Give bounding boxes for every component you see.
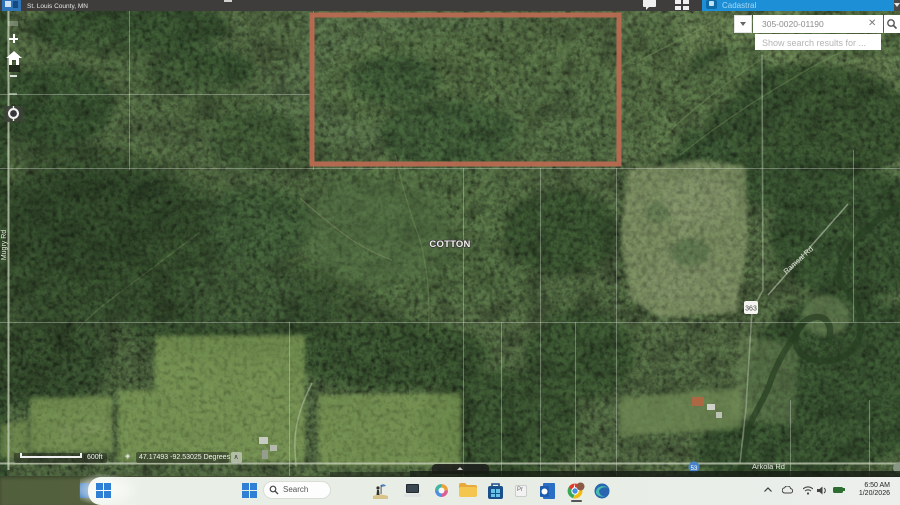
svg-text:363: 363: [745, 306, 757, 313]
svg-text:Mugry Rd: Mugry Rd: [1, 230, 8, 260]
svg-text:COTTON: COTTON: [429, 239, 470, 250]
